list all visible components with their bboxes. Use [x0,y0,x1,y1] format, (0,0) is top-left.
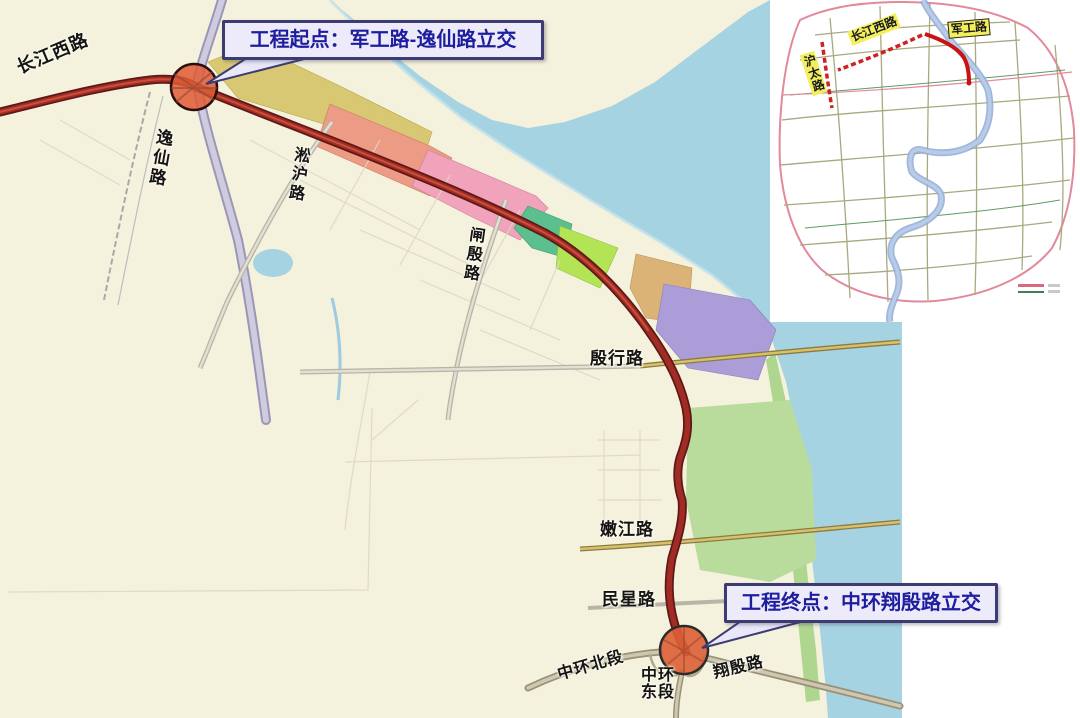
start-callout-text: 工程起点：军工路-逸仙路立交 [233,23,533,57]
road-label-yinhang-lu: 殷行路 [590,350,644,368]
end-callout: 工程终点：中环翔殷路立交 [724,583,998,623]
inset-label-jungong-lu: 军工路 [947,18,990,39]
legend-swatch-expressway [1018,284,1044,287]
park-area [686,400,816,582]
legend-label-smudge [1048,284,1060,287]
inset-map: 长江西路 军工路 沪太路 [770,0,1080,322]
legend-swatch-arterial [1018,291,1044,293]
legend-label-smudge [1048,290,1060,293]
lake [253,249,293,277]
inset-legend [1018,284,1064,293]
road-label-zhonghuan-dongduan: 中环东段 [636,668,680,702]
legend-item-arterial [1018,290,1064,293]
start-interchange [171,64,217,110]
road-label-nenjiang-lu: 嫩江路 [600,521,654,539]
end-callout-text: 工程终点：中环翔殷路立交 [735,586,987,620]
road-label-minxing-lu: 民星路 [602,591,656,609]
inset-map-art [770,0,1080,322]
legend-item-expressway [1018,284,1064,287]
project-map: 长江西路 逸仙路 淞沪路 闸殷路 殷行路 嫩江路 民星路 中环北段 中环东段 翔… [0,0,1080,718]
start-callout: 工程起点：军工路-逸仙路立交 [222,20,544,60]
inset-route-highlight [822,34,972,108]
